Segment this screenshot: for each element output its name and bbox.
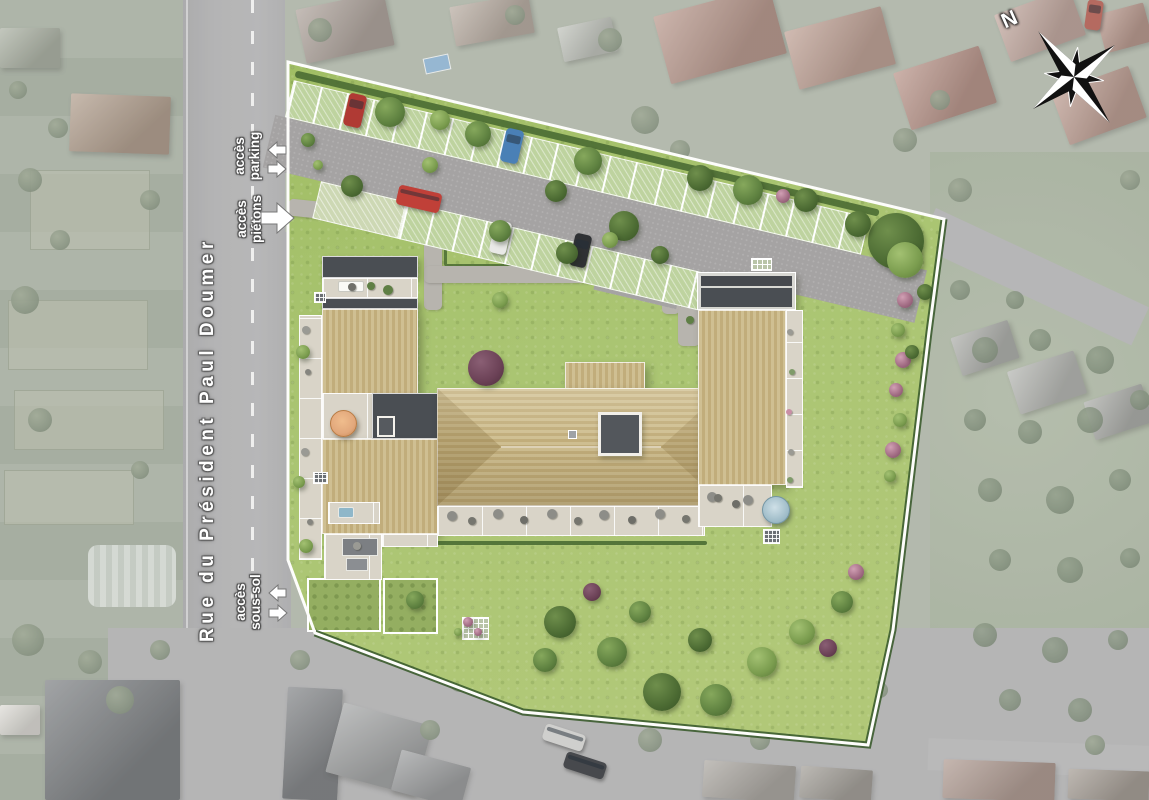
arrow-pietons-icon [261, 203, 294, 233]
access-arrows [0, 0, 1149, 800]
arrow-parking-in-icon [268, 161, 286, 177]
arrow-soussol-in-icon [269, 605, 287, 621]
site-plan-canvas: Rue du Président Paul Doumer accès parki… [0, 0, 1149, 800]
arrow-soussol-out-icon [269, 585, 286, 601]
arrow-parking-out-icon [268, 142, 286, 158]
